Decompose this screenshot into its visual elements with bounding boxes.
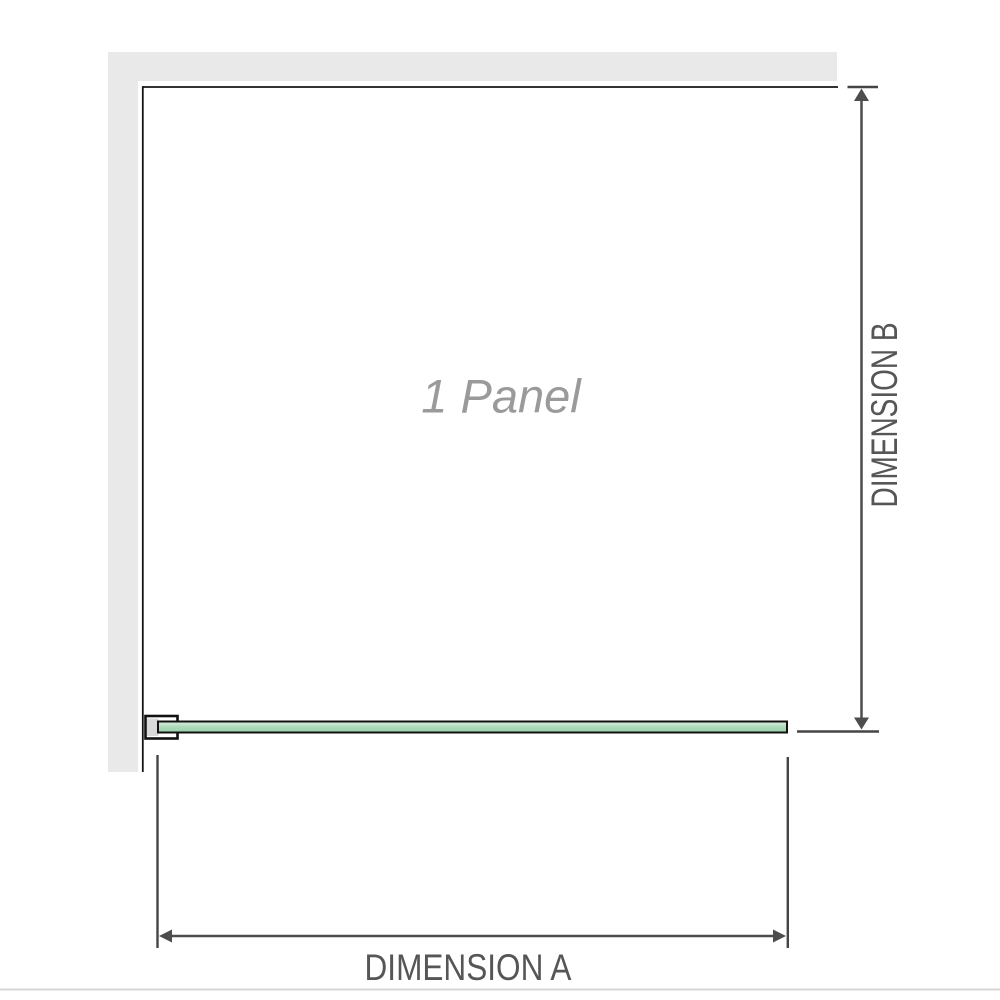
svg-text:1 Panel: 1 Panel (421, 370, 582, 423)
svg-text:DIMENSION B: DIMENSION B (864, 323, 905, 508)
svg-text:DIMENSION A: DIMENSION A (365, 947, 572, 988)
